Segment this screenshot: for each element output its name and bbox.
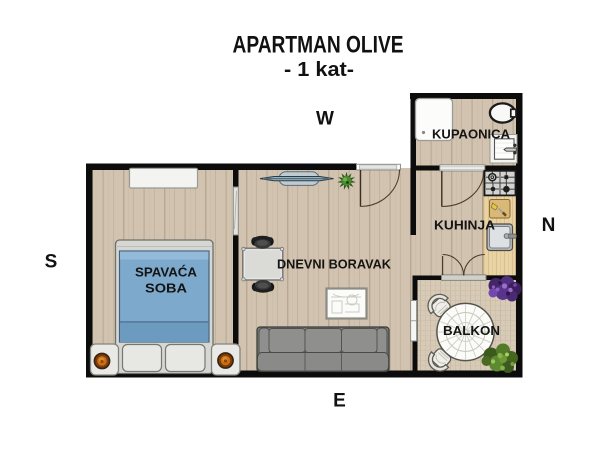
svg-text:E: E [333,391,346,412]
svg-text:S: S [45,252,58,273]
svg-text:SOBA: SOBA [145,281,188,296]
svg-text:BALKON: BALKON [443,323,500,338]
svg-text:KUHINJA: KUHINJA [434,218,496,233]
svg-text:- 1 kat-: - 1 kat- [284,58,354,81]
svg-text:DNEVNI BORAVAK: DNEVNI BORAVAK [277,257,392,272]
svg-text:SPAVAĆA: SPAVAĆA [135,265,198,280]
svg-text:W: W [316,109,334,130]
svg-text:N: N [542,215,556,236]
svg-text:APARTMAN OLIVE: APARTMAN OLIVE [233,32,404,59]
svg-text:KUPAONICA: KUPAONICA [432,127,511,142]
